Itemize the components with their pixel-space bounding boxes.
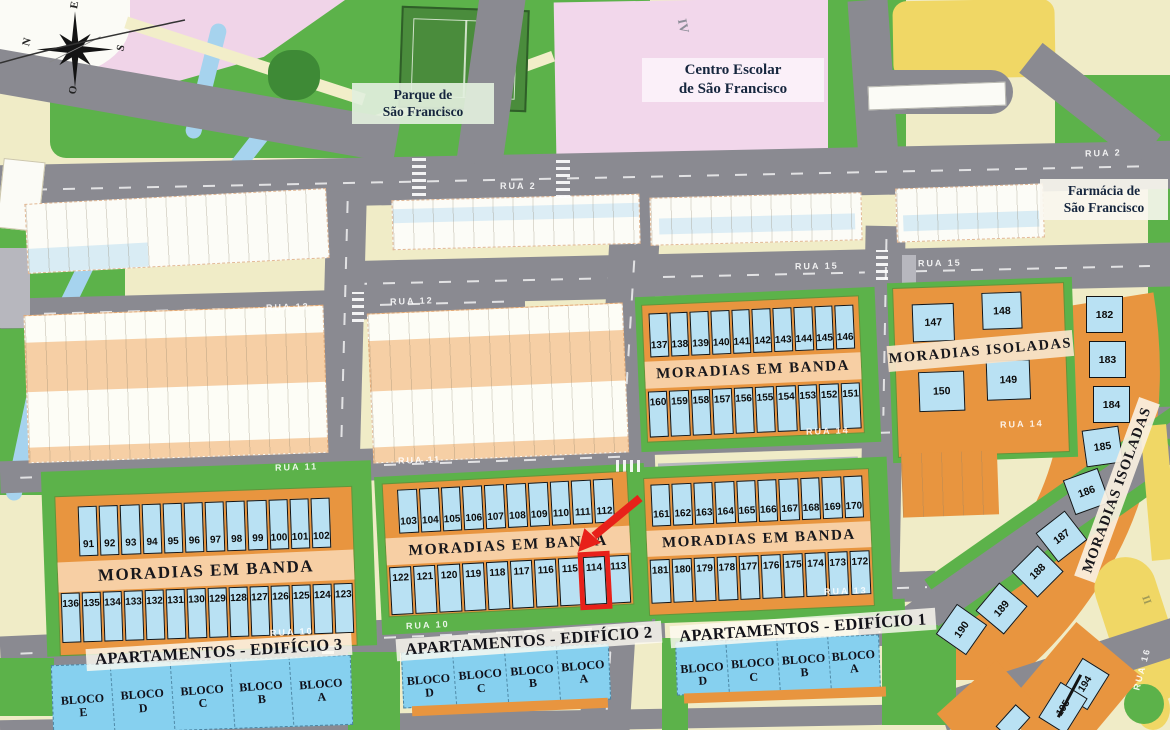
street-label-rua-14: RUA 14 (1000, 418, 1044, 430)
lot-135: 135 (82, 592, 103, 643)
lot-123: 123 (334, 583, 355, 634)
curve-lot-183: 183 (1089, 341, 1126, 378)
lot-179: 179 (694, 557, 716, 602)
lot-136: 136 (61, 592, 82, 643)
bloco-c: BLOCOC (453, 648, 509, 706)
lot-108: 108 (506, 483, 528, 528)
lot-group-banda-upper-right: 137138139140141142143144145146 MORADIAS … (642, 296, 864, 441)
lot-128: 128 (229, 587, 250, 638)
lot-103: 103 (397, 489, 419, 534)
commercial-strip (391, 194, 640, 250)
lot-157: 157 (712, 388, 733, 435)
lot-93: 93 (120, 504, 141, 555)
lot-102: 102 (310, 498, 331, 549)
lot-158: 158 (691, 389, 712, 436)
lot-121: 121 (413, 565, 438, 614)
building (868, 82, 1007, 111)
lot-166: 166 (757, 479, 778, 522)
street-label-rua-12: RUA 12 (266, 301, 310, 313)
lot-91: 91 (78, 506, 99, 557)
site-plan-map: 919293949596979899100101102 MORADIAS EM … (0, 0, 1170, 730)
bloco-e: BLOCOE (51, 663, 115, 730)
lot-94: 94 (141, 504, 162, 555)
lot-153: 153 (798, 384, 819, 431)
centro-escolar-label-line1: Centro Escolar (646, 61, 820, 80)
lot-165: 165 (736, 480, 757, 523)
lot-99: 99 (247, 500, 268, 551)
curve-lot-184: 184 (1093, 386, 1130, 423)
lot-162: 162 (672, 483, 693, 526)
bloco-c: BLOCOC (726, 638, 780, 693)
lot-144: 144 (793, 306, 814, 351)
corner-lots: 194195 (1030, 660, 1170, 730)
bloco-b: BLOCOB (777, 636, 831, 691)
lot-97: 97 (205, 501, 226, 552)
lot-163: 163 (693, 482, 714, 525)
commercial-strip (895, 183, 1045, 242)
centro-escolar-label-line2: de São Francisco (646, 80, 820, 99)
lot-134: 134 (103, 591, 124, 642)
lot-row-137-146: 137138139140141142143144145146 (648, 305, 854, 358)
street-label-rua-14: RUA 14 (806, 425, 850, 437)
parcel-block (367, 302, 629, 463)
crosswalk (352, 292, 364, 322)
lot-122: 122 (389, 566, 414, 615)
parque-label-line1: Parque de (356, 86, 490, 103)
lot-137: 137 (648, 313, 669, 358)
centro-escolar-label: Centro Escolar de São Francisco (642, 58, 824, 102)
lot-95: 95 (162, 503, 183, 554)
lot-133: 133 (124, 590, 145, 641)
lot-100: 100 (268, 499, 289, 550)
lot-142: 142 (752, 308, 773, 353)
map-boundary-line (0, 8, 200, 88)
lot-96: 96 (183, 502, 204, 553)
lot-141: 141 (731, 309, 752, 354)
bloco-d: BLOCOD (675, 640, 729, 695)
lot-131: 131 (166, 589, 187, 640)
lot-160: 160 (648, 391, 669, 438)
bloco-d: BLOCOD (111, 661, 175, 730)
lot-92: 92 (99, 505, 120, 556)
lot-170: 170 (843, 475, 864, 518)
commercial-strip (649, 192, 862, 246)
annotation-arrow (540, 488, 650, 568)
lot-152: 152 (819, 383, 840, 430)
lot-175: 175 (783, 553, 805, 598)
lot-167: 167 (779, 478, 800, 521)
street-label-rua-15: RUA 15 (795, 261, 839, 272)
trees (268, 50, 320, 100)
lot-146: 146 (834, 305, 855, 350)
street-label-rua-13: RUA 13 (824, 585, 868, 597)
bloco-b: BLOCOB (230, 657, 294, 729)
street-label-rua-11: RUA 11 (275, 461, 319, 473)
bloco-a: BLOCOA (827, 635, 880, 690)
lot-98: 98 (226, 501, 247, 552)
lot-row-161-170: 161162163164165166167168169170 (650, 475, 864, 526)
parcel-block (24, 305, 329, 463)
lot-106: 106 (462, 485, 484, 530)
lot-104: 104 (419, 488, 441, 533)
lot-132: 132 (145, 589, 166, 640)
lot-159: 159 (669, 390, 690, 437)
crosswalk (616, 460, 642, 472)
lot-row-91-102: 919293949596979899100101102 (78, 498, 332, 557)
lot-107: 107 (484, 484, 506, 529)
street-label-rua-11: RUA 11 (398, 454, 442, 466)
street-label-rua-2: RUA 2 (500, 181, 537, 191)
street-label-rua-15: RUA 15 (918, 258, 962, 269)
lot-119: 119 (462, 562, 487, 611)
crosswalk (556, 158, 570, 198)
green-area (348, 652, 400, 730)
lot-180: 180 (672, 558, 694, 603)
crosswalk (412, 156, 426, 196)
lot-120: 120 (437, 564, 462, 613)
lot-145: 145 (814, 305, 835, 350)
street-label-rua-2: RUA 2 (1085, 147, 1122, 158)
lot-138: 138 (669, 312, 690, 357)
green-area (0, 658, 54, 716)
lot-130: 130 (187, 588, 208, 639)
farmacia-label-line1: Farmácia de (1044, 182, 1164, 199)
bloco-a: BLOCOA (556, 644, 611, 702)
lot-143: 143 (772, 307, 793, 352)
lot-118: 118 (486, 561, 511, 610)
bloco-b: BLOCOB (504, 646, 560, 704)
lot-176: 176 (761, 554, 783, 599)
lot-181: 181 (650, 559, 672, 604)
commercial-strip (24, 188, 329, 274)
lot-101: 101 (289, 498, 310, 549)
curve-lot-182: 182 (1086, 296, 1123, 333)
parque-label: Parque de São Francisco (352, 83, 494, 124)
lot-151: 151 (840, 382, 861, 429)
crosswalk (876, 250, 888, 280)
lot-129: 129 (208, 587, 229, 638)
lot-105: 105 (441, 486, 463, 531)
lot-168: 168 (800, 477, 821, 520)
lot-154: 154 (776, 385, 797, 432)
lot-177: 177 (738, 555, 760, 600)
lot-140: 140 (710, 310, 731, 355)
lot-178: 178 (716, 556, 738, 601)
bloco-c: BLOCOC (170, 659, 234, 730)
bloco-a: BLOCOA (290, 655, 353, 727)
lot-124: 124 (313, 584, 334, 635)
lot-161: 161 (650, 484, 671, 527)
lot-127: 127 (250, 586, 271, 637)
parque-label-line2: São Francisco (356, 103, 490, 120)
farmacia-label: Farmácia de São Francisco (1040, 179, 1168, 220)
lot-164: 164 (715, 481, 736, 524)
street-label-rua-12: RUA 12 (390, 295, 434, 307)
lot-117: 117 (510, 560, 535, 609)
lot-169: 169 (821, 476, 842, 519)
farmacia-label-line2: São Francisco (1044, 199, 1164, 216)
lot-156: 156 (733, 387, 754, 434)
lot-155: 155 (755, 386, 776, 433)
lot-139: 139 (690, 311, 711, 356)
